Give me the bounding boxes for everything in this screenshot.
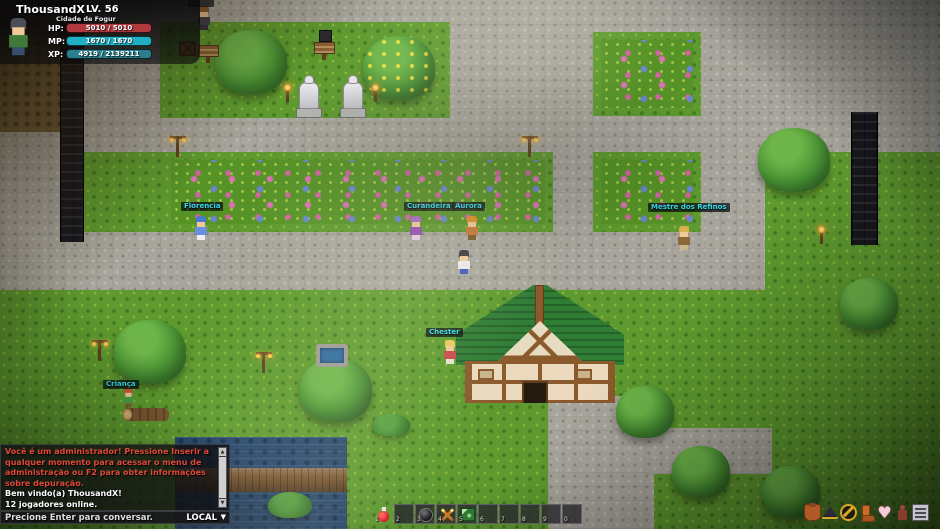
hotbar-slot-8[interactable]: 8	[520, 504, 540, 524]
slot-key: 6	[480, 516, 484, 523]
mp-bar: 1670 / 1670	[66, 36, 152, 46]
hotbar-slot-2[interactable]: 2	[394, 504, 414, 524]
fountain	[316, 344, 348, 367]
bush	[268, 492, 312, 518]
hotbar-slot-3[interactable]: 3	[415, 504, 435, 524]
npc-name-label: Florencia	[181, 202, 223, 211]
hotbar-slot-5[interactable]: 5	[457, 504, 477, 524]
supply-bag-icon[interactable]	[804, 504, 821, 521]
npc-crianca[interactable]	[122, 388, 135, 407]
statue-body	[299, 82, 319, 109]
tree	[758, 128, 830, 192]
gold-emblem-icon[interactable]	[840, 504, 857, 521]
slot-key: 8	[522, 516, 526, 523]
black-orb-icon	[419, 508, 433, 522]
statue-body	[343, 82, 363, 109]
player-level: LV. 56	[86, 4, 119, 15]
channel-selector[interactable]: LOCAL	[186, 513, 217, 523]
fallen-log	[123, 408, 169, 421]
house	[456, 285, 624, 403]
xp-bar: 4919 / 2139211	[66, 49, 152, 59]
hp-bar: 5010 / 5010	[66, 23, 152, 33]
leather-boot-icon[interactable]	[858, 504, 875, 521]
lamp-post	[170, 134, 186, 158]
hotbar-slot-6[interactable]: 6	[478, 504, 498, 524]
player-character[interactable]	[456, 250, 472, 274]
scroll-down-arrow[interactable]: ▼	[219, 499, 226, 507]
chat-messages: Você é um administrador! Pressione Inser…	[5, 447, 213, 509]
player-location: Cidade de Fogur	[56, 15, 116, 23]
hotbar: 1 2 3 4 5 6 7 8 9 0	[373, 504, 588, 526]
tree	[300, 358, 372, 422]
statue	[296, 72, 322, 118]
stone-wall-right	[851, 112, 878, 245]
lamp-post	[92, 338, 108, 362]
mp-label: MP:	[48, 37, 65, 46]
scroll-up-arrow[interactable]: ▲	[219, 448, 226, 456]
green-rune-icon	[461, 508, 475, 521]
npc-chester[interactable]	[442, 340, 458, 364]
slot-key: 5	[459, 516, 463, 523]
hp-label: HP:	[48, 24, 64, 33]
tree	[616, 386, 674, 438]
flower-bed	[171, 160, 545, 224]
lamp-post	[522, 134, 538, 158]
garden-right	[593, 152, 701, 232]
garden-center	[163, 152, 553, 232]
menu-icon-bar: ♥	[804, 504, 936, 524]
player-status-panel: ThousandX LV. 56 Cidade de Fogur HP: 501…	[0, 0, 200, 64]
npc-aurora[interactable]	[464, 216, 480, 240]
scroll-thumb[interactable]	[219, 457, 226, 498]
flower-bed	[601, 40, 693, 108]
slot-key: 3	[417, 516, 421, 523]
hotbar-slot-0[interactable]: 0	[562, 504, 582, 524]
chat-scrollbar[interactable]: ▲ ▼	[218, 447, 227, 508]
statue-pedestal	[296, 108, 322, 118]
hp-row: HP: 5010 / 5010	[0, 23, 200, 35]
flower-bed	[601, 160, 693, 224]
grass-area-left	[84, 152, 163, 232]
npc-name-label: Chester	[426, 328, 463, 337]
bulletin-board[interactable]	[319, 30, 332, 42]
hotbar-slot-7[interactable]: 7	[499, 504, 519, 524]
heart-icon[interactable]: ♥	[876, 504, 893, 521]
house-window	[478, 369, 494, 380]
slot-key: 9	[543, 516, 547, 523]
slot-key: 0	[564, 516, 568, 523]
slot-key: 7	[501, 516, 505, 523]
menu-list-icon[interactable]	[912, 504, 929, 521]
npc-mestre-refinos[interactable]	[676, 226, 692, 250]
chevron-down-icon[interactable]: ▼	[221, 513, 226, 521]
slot-key: 1	[375, 516, 379, 523]
hotbar-slot-9[interactable]: 9	[541, 504, 561, 524]
statue-head	[304, 75, 314, 84]
mp-row: MP: 1670 / 1670	[0, 36, 200, 48]
bush	[372, 414, 410, 436]
garden-top-right	[593, 32, 701, 116]
npc-name-label: Aurora	[452, 202, 485, 211]
chat-input-hint: Precione Enter para conversar.	[5, 513, 153, 523]
tree	[215, 30, 287, 94]
character-figure-icon[interactable]	[894, 504, 911, 521]
statue	[340, 72, 366, 118]
chat-message: 12 jogadores online.	[5, 500, 213, 510]
house-door[interactable]	[522, 381, 548, 403]
npc-name-label: Curandeira	[404, 202, 454, 211]
npc-name-label: Criança	[103, 380, 139, 389]
chat-input-bar[interactable]: Precione Enter para conversar. LOCAL ▼	[0, 511, 230, 524]
torch	[818, 226, 826, 244]
statue-head	[348, 75, 358, 84]
npc-name-label: Mestre dos Refinos	[648, 203, 730, 212]
chat-window[interactable]: Você é um administrador! Pressione Inser…	[0, 444, 230, 511]
chat-message: Bem vindo(a) ThousandX!	[5, 489, 213, 500]
house-window	[576, 369, 592, 380]
hotbar-slot-1[interactable]: 1	[373, 504, 393, 524]
lamp-post	[256, 350, 272, 374]
npc-florencia[interactable]	[193, 216, 209, 240]
tree	[840, 278, 898, 330]
slot-key: 4	[438, 516, 442, 523]
statue-pedestal	[340, 108, 366, 118]
health-potion-icon	[378, 507, 389, 522]
hotbar-slot-4[interactable]: 4	[436, 504, 456, 524]
xp-label: XP:	[48, 50, 63, 59]
torch	[372, 84, 380, 102]
slot-key: 2	[396, 516, 400, 523]
vendor-sign[interactable]	[198, 45, 219, 63]
game-viewport[interactable]: Florencia Curandeira Aurora Mestre dos R…	[0, 0, 940, 529]
xp-row: XP: 4919 / 2139211	[0, 49, 200, 61]
wizard-hat-icon[interactable]	[822, 504, 839, 521]
npc-curandeira[interactable]	[408, 216, 424, 240]
torch	[284, 84, 292, 102]
sign-board[interactable]	[314, 42, 335, 60]
tree	[114, 320, 186, 384]
tree	[672, 446, 730, 498]
chat-message: Você é um administrador! Pressione Inser…	[5, 447, 213, 489]
